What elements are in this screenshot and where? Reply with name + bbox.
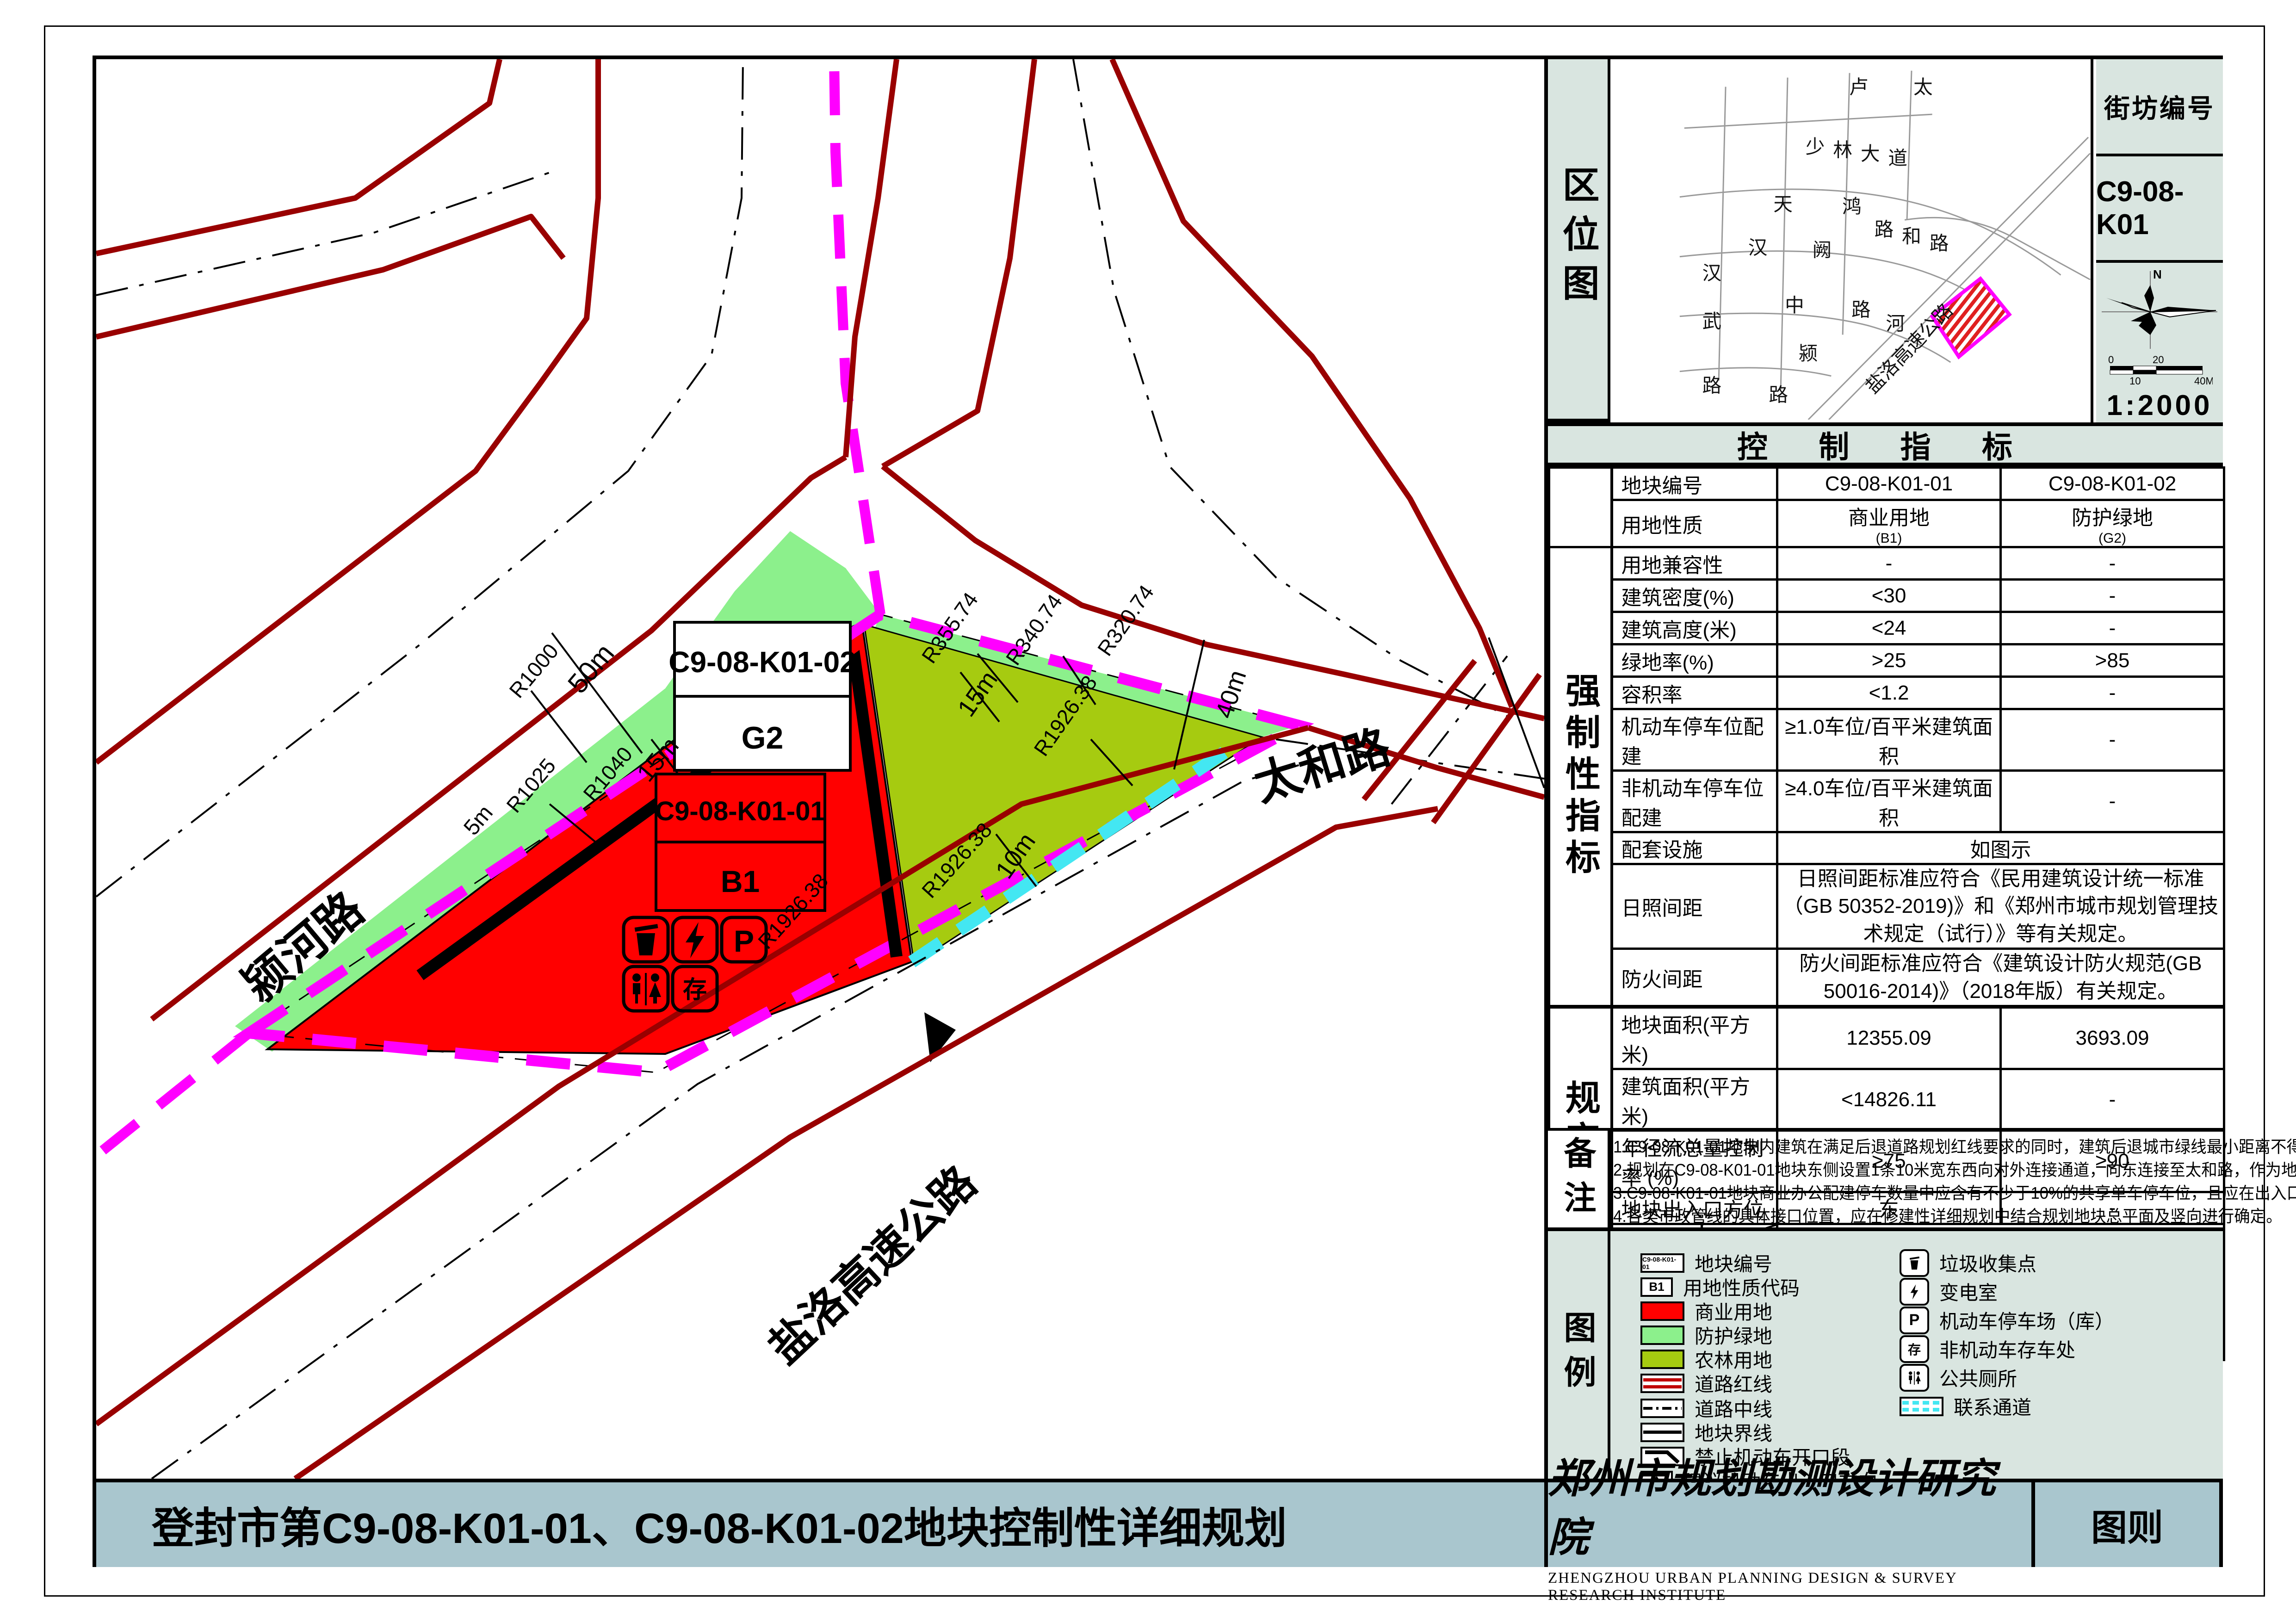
institute-name: 郑州市规划勘测设计研究院 xyxy=(1548,1446,2031,1563)
row-value: - xyxy=(2001,771,2224,832)
row-value: C9-08-K01-02 xyxy=(2001,468,2224,500)
row-label: 日照间距 xyxy=(1612,864,1777,949)
info-panel: 区位图 xyxy=(1544,59,2223,1479)
parcel2-code: C9-08-K01-02 xyxy=(668,645,856,679)
inset-road-label: 路 xyxy=(1769,384,1788,405)
institute-name-en: ZHENGZHOU URBAN PLANNING DESIGN & SURVEY… xyxy=(1548,1570,2031,1604)
row-value: - xyxy=(2001,612,2224,644)
scale-text: 1:2000 xyxy=(2106,389,2212,422)
row-value: 12355.09 xyxy=(1777,1007,2001,1069)
location-right-column: 街坊编号 C9-08-K01 xyxy=(2096,59,2223,422)
row-label: 地块编号 xyxy=(1612,468,1777,500)
location-section-label: 区位图 xyxy=(1548,59,1610,422)
inset-road-label: 和 xyxy=(1902,225,1921,247)
legend-item: 道路红线 xyxy=(1640,1369,1772,1397)
row-value: - xyxy=(2001,580,2224,612)
row-label: 用地性质 xyxy=(1612,500,1777,547)
row-label: 地块面积(平方米) xyxy=(1612,1007,1777,1069)
row-value: 3693.09 xyxy=(2001,1007,2224,1069)
road-redline-swatch xyxy=(1640,1374,1684,1393)
row-value: >85 xyxy=(2001,644,2224,677)
row-value: - xyxy=(2001,677,2224,709)
legend-item: P 机动车停车场（库） xyxy=(1900,1306,2114,1334)
svg-text:40M: 40M xyxy=(2194,375,2213,386)
mandatory-section-label: 强制性指标 xyxy=(1554,672,1605,880)
inset-road-label: 路 xyxy=(1930,232,1949,254)
scale-bar: 0 20 10 40M xyxy=(2106,356,2213,386)
inset-road-label: 颍 xyxy=(1799,342,1818,364)
row-label: 建筑面积(平方米) xyxy=(1612,1069,1777,1130)
road-centerline-swatch xyxy=(1640,1399,1684,1418)
inset-road-label: 太 xyxy=(1913,76,1933,98)
legend-section: 图例 C9-08-K01-01 地块编号 B1 用地性质代码 商业用地 防护绿地 xyxy=(1548,1227,2223,1479)
row-label: 建筑高度(米) xyxy=(1612,612,1777,644)
inset-road-label: 少 xyxy=(1806,136,1825,157)
location-inset-map: 卢太少林大道天鸿汉阙路和路汉武中路河颍路路盐洛高速公路 xyxy=(1610,59,2093,422)
table-row: 建筑面积(平方米)<14826.11- xyxy=(1549,1069,2224,1130)
inset-road-label: 路 xyxy=(1875,218,1894,240)
parking-legend-icon: P xyxy=(1900,1307,1929,1334)
row-label: 建筑密度(%) xyxy=(1612,580,1777,612)
block-number-value: C9-08-K01 xyxy=(2096,156,2223,263)
inset-road-label: 阙 xyxy=(1813,239,1832,261)
row-value: 如图示 xyxy=(1777,832,2224,864)
row-value: - xyxy=(2001,1069,2224,1130)
row-label: 容积率 xyxy=(1612,677,1777,709)
row-label: 机动车停车位配建 xyxy=(1612,709,1777,771)
legend-item: 存 非机动车存车处 xyxy=(1900,1335,2075,1363)
sheet-title: 登封市第C9-08-K01-01、C9-08-K01-02地块控制性详细规划 xyxy=(96,1482,1544,1567)
row-value: 防火间距标准应符合《建筑设计防火规范(GB 50016-2014)》（2018年… xyxy=(1777,949,2224,1007)
row-value: <1.2 xyxy=(1777,677,2001,709)
table-row: 配套设施如图示 xyxy=(1549,832,2224,864)
use-code-swatch: B1 xyxy=(1640,1277,1673,1297)
row-value: ≥1.0车位/百平米建筑面积 xyxy=(1777,709,2001,771)
legend-item: 垃圾收集点 xyxy=(1900,1249,2036,1277)
row-label: 非机动车停车位配建 xyxy=(1612,771,1777,832)
note-item: 3.C9-08-K01-01地块商业办公配建停车数量中应含有不少于10%的共享单… xyxy=(1613,1182,2191,1205)
sheet-type: 图则 xyxy=(2031,1482,2219,1567)
row-value: <14826.11 xyxy=(1777,1069,2001,1130)
table-row: 建筑高度(米)<24- xyxy=(1549,612,2224,644)
svg-text:10: 10 xyxy=(2129,375,2141,386)
substation-legend-icon xyxy=(1900,1278,1929,1306)
parcel2-label-box: C9-08-K01-02 G2 xyxy=(668,622,856,770)
legend-item: 联系通道 xyxy=(1900,1392,2031,1420)
table-row: 容积率<1.2- xyxy=(1549,677,2224,709)
table-row: 机动车停车位配建≥1.0车位/百平米建筑面积- xyxy=(1549,709,2224,771)
row-label: 配套设施 xyxy=(1612,832,1777,864)
row-value: - xyxy=(2001,547,2224,580)
notes-label: 备注 xyxy=(1548,1131,1610,1230)
notes-section: 备注 1.C9-08-K01-01地块内建筑在满足后退道路规划红线要求的同时，建… xyxy=(1548,1128,2223,1230)
row-value: >25 xyxy=(1777,644,2001,677)
legend-item: 公共厕所 xyxy=(1900,1363,2017,1392)
inset-road-label: 大 xyxy=(1861,142,1880,164)
row-value: - xyxy=(2001,709,2224,771)
inset-road-label: 武 xyxy=(1702,310,1721,332)
drawing-frame: C9-08-K01-02 G2 C9-08-K01-01 B1 xyxy=(93,56,2223,1567)
inset-road-label: 天 xyxy=(1773,193,1793,215)
connection-channel-swatch xyxy=(1900,1397,1943,1416)
legend-label: 图例 xyxy=(1548,1231,1610,1479)
table-row: 规定性指标 地块面积(平方米) 12355.09 3693.09 xyxy=(1549,1007,2224,1069)
inset-road-label: 河 xyxy=(1886,312,1905,334)
note-item: 2.规划在C9-08-K01-01地块东侧设置1条10米宽东西向对外连接通道，向… xyxy=(1613,1158,2191,1182)
institute-cell: 郑州市规划勘测设计研究院 ZHENGZHOU URBAN PLANNING DE… xyxy=(1544,1482,2031,1567)
location-section: 区位图 xyxy=(1548,59,2223,422)
row-value: 商业用地(B1) xyxy=(1777,500,2001,547)
table-row: 绿地率(%)>25>85 xyxy=(1549,644,2224,677)
table-row: 日照间距日照间距标准应符合《民用建筑设计统一标准（GB 50352-2019)》… xyxy=(1549,864,2224,949)
toilet-legend-icon xyxy=(1900,1364,1929,1392)
compass-scale-cell: N 0 20 10 40M 1:2000 xyxy=(2096,263,2223,422)
row-value: - xyxy=(1777,547,2001,580)
inset-road-label: 林 xyxy=(1833,139,1852,161)
inset-road-label: 汉 xyxy=(1748,237,1768,259)
inset-road-label: 路 xyxy=(1851,299,1871,321)
svg-text:存: 存 xyxy=(683,977,707,1004)
block-boundary-swatch xyxy=(1640,1423,1684,1442)
row-value: 日照间距标准应符合《民用建筑设计统一标准（GB 50352-2019)》和《郑州… xyxy=(1777,864,2224,949)
row-value: <24 xyxy=(1777,612,2001,644)
parcel1-code: C9-08-K01-01 xyxy=(655,796,825,826)
inset-road-label: 路 xyxy=(1702,374,1721,396)
note-item: 4.各类市政管线的具体接口位置，应在修建性详细规划中结合规划地块总平面及竖向进行… xyxy=(1613,1205,2191,1228)
row-label: 绿地率(%) xyxy=(1612,644,1777,677)
inset-road-label: 卢 xyxy=(1849,76,1869,98)
farm-land-swatch xyxy=(1640,1350,1684,1369)
parcel-code-swatch: C9-08-K01-01 xyxy=(1640,1253,1684,1273)
svg-text:20: 20 xyxy=(2153,356,2164,365)
parcel1-use: B1 xyxy=(721,864,760,898)
block-number-label: 街坊编号 xyxy=(2096,59,2223,156)
buffer-green-swatch xyxy=(1640,1326,1684,1345)
row-value: 防护绿地(G2) xyxy=(2001,500,2224,547)
plan-sheet: C9-08-K01-02 G2 C9-08-K01-01 B1 xyxy=(0,0,2296,1623)
site-plan-map: C9-08-K01-02 G2 C9-08-K01-01 B1 xyxy=(96,59,1544,1479)
compass-icon: N xyxy=(2099,263,2220,356)
table-row: 用地性质 商业用地(B1) 防护绿地(G2) xyxy=(1549,500,2224,547)
bike-storage-legend-icon: 存 xyxy=(1900,1335,1929,1363)
row-value: C9-08-K01-01 xyxy=(1777,468,2001,500)
row-label: 防火间距 xyxy=(1612,949,1777,1007)
table-row: 地块编号 C9-08-K01-01 C9-08-K01-02 xyxy=(1549,468,2224,500)
row-value: ≥4.0车位/百平米建筑面积 xyxy=(1777,771,2001,832)
inset-road-label: 中 xyxy=(1785,294,1804,316)
title-bar: 登封市第C9-08-K01-01、C9-08-K01-02地块控制性详细规划 郑… xyxy=(96,1479,2219,1567)
inset-road-label: 汉 xyxy=(1702,262,1721,284)
table-row: 强制性指标 用地兼容性 - - xyxy=(1549,547,2224,580)
control-indicators-title: 控 制 指 标 xyxy=(1548,422,2223,466)
table-row: 防火间距防火间距标准应符合《建筑设计防火规范(GB 50016-2014)》（2… xyxy=(1549,949,2224,1007)
commercial-swatch xyxy=(1640,1301,1684,1321)
svg-text:N: N xyxy=(2153,267,2162,281)
svg-text:P: P xyxy=(734,924,754,958)
parcel2-use: G2 xyxy=(742,720,784,756)
inset-road-label: 道 xyxy=(1888,147,1907,169)
inset-road-label: 鸿 xyxy=(1842,195,1862,217)
row-value: <30 xyxy=(1777,580,2001,612)
table-row: 建筑密度(%)<30- xyxy=(1549,580,2224,612)
legend-item: 变电室 xyxy=(1900,1277,1998,1306)
row-label: 用地兼容性 xyxy=(1612,547,1777,580)
table-row: 非机动车停车位配建≥4.0车位/百平米建筑面积- xyxy=(1549,771,2224,832)
note-item: 1.C9-08-K01-01地块内建筑在满足后退道路规划红线要求的同时，建筑后退… xyxy=(1613,1135,2191,1158)
trash-collection-legend-icon xyxy=(1900,1249,1929,1277)
svg-text:0: 0 xyxy=(2108,356,2114,365)
